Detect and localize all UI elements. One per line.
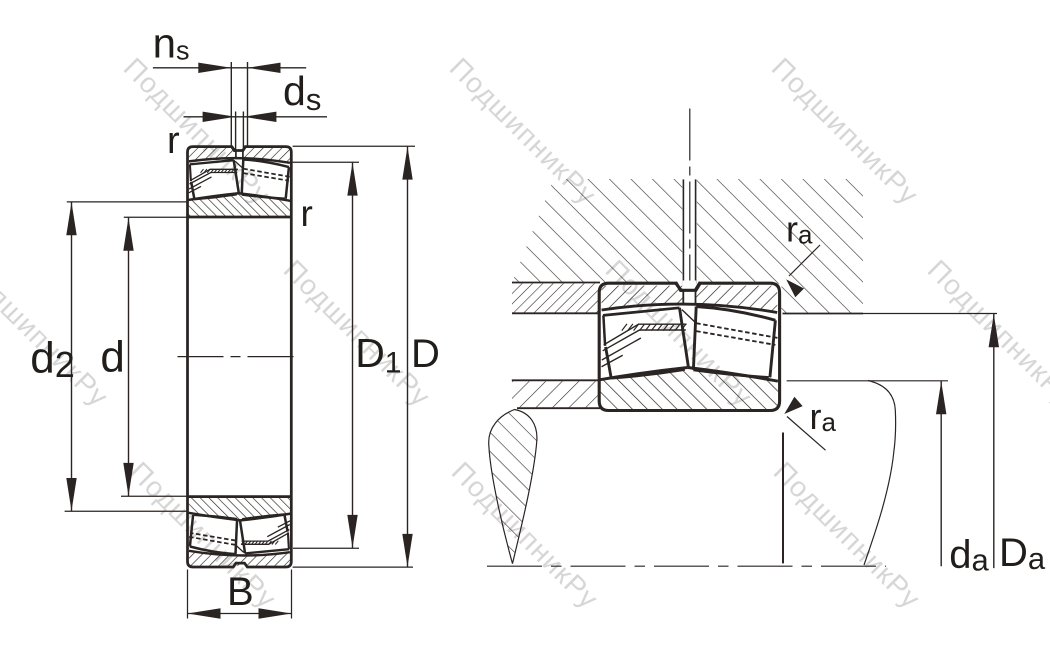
svg-text:d: d bbox=[100, 333, 124, 382]
svg-text:Da: Da bbox=[999, 531, 1046, 576]
svg-text:r: r bbox=[301, 193, 313, 234]
svg-text:D1: D1 bbox=[355, 330, 401, 379]
svg-text:d2: d2 bbox=[30, 334, 75, 385]
svg-text:ra: ra bbox=[810, 396, 837, 437]
svg-text:B: B bbox=[227, 570, 254, 614]
svg-text:da: da bbox=[949, 533, 989, 578]
svg-text:D: D bbox=[411, 332, 440, 376]
svg-text:ПодшипникРу: ПодшипникРу bbox=[0, 254, 115, 413]
svg-text:ПодшипникРу: ПодшипникРу bbox=[768, 456, 927, 615]
svg-text:ns: ns bbox=[153, 20, 190, 67]
svg-text:ds: ds bbox=[283, 68, 321, 117]
svg-text:r: r bbox=[167, 120, 180, 162]
svg-text:ПодшипникРу: ПодшипникРу bbox=[118, 52, 277, 211]
